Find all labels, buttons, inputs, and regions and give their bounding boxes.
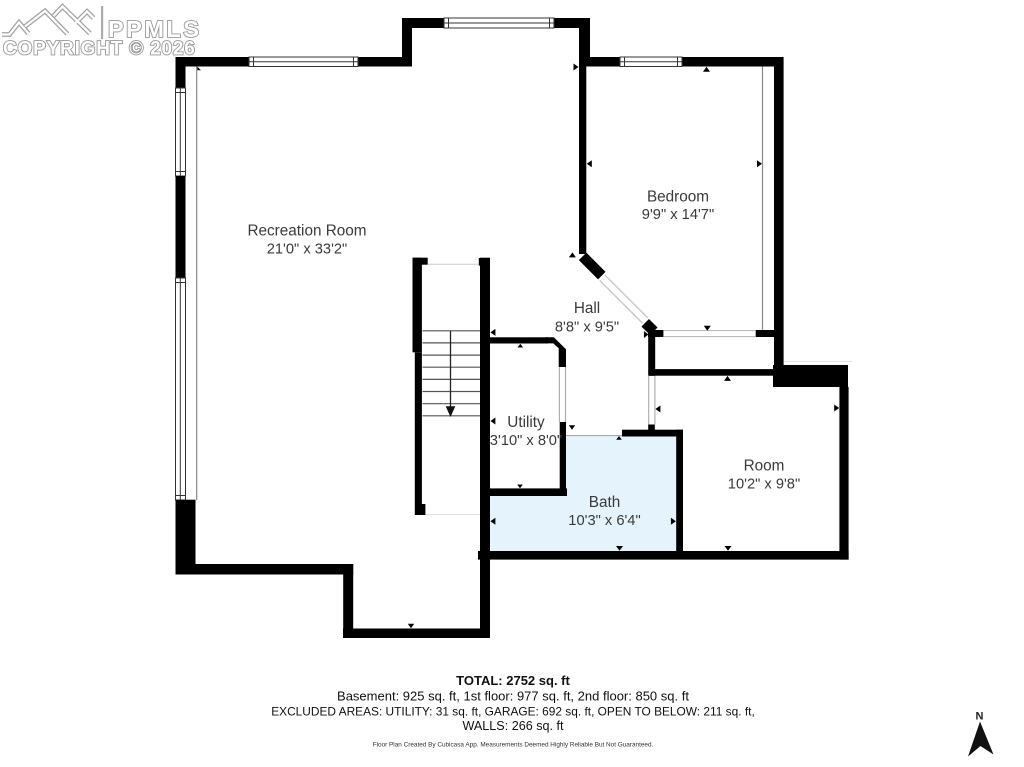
svg-text:TOTAL: 2752 sq. ft: TOTAL: 2752 sq. ft — [456, 673, 570, 688]
svg-text:21'0" x 33'2": 21'0" x 33'2" — [267, 242, 348, 258]
svg-text:Floor Plan Created By Cubicasa: Floor Plan Created By Cubicasa App. Meas… — [373, 742, 654, 749]
svg-text:Utility: Utility — [507, 414, 545, 431]
svg-text:N: N — [976, 711, 984, 723]
svg-text:9'9" x 14'7": 9'9" x 14'7" — [642, 207, 714, 223]
svg-text:Hall: Hall — [574, 300, 600, 317]
svg-text:Recreation Room: Recreation Room — [247, 223, 366, 240]
svg-text:Bath: Bath — [589, 494, 620, 511]
svg-text:Room: Room — [744, 458, 785, 475]
svg-text:Bedroom: Bedroom — [647, 189, 709, 206]
svg-text:10'3" x 6'4": 10'3" x 6'4" — [568, 513, 640, 529]
svg-text:3'10" x 8'0": 3'10" x 8'0" — [490, 433, 562, 449]
svg-text:WALLS: 266 sq. ft: WALLS: 266 sq. ft — [462, 719, 564, 733]
svg-text:8'8" x 9'5": 8'8" x 9'5" — [555, 320, 619, 336]
svg-text:10'2" x 9'8": 10'2" x 9'8" — [728, 477, 800, 493]
svg-text:EXCLUDED AREAS: UTILITY: 31 sq: EXCLUDED AREAS: UTILITY: 31 sq. ft, GARA… — [271, 705, 755, 719]
svg-text:COPYRIGHT © 2026: COPYRIGHT © 2026 — [3, 39, 196, 60]
svg-text:Basement: 925 sq. ft, 1st floo: Basement: 925 sq. ft, 1st floor: 977 sq.… — [337, 689, 689, 704]
